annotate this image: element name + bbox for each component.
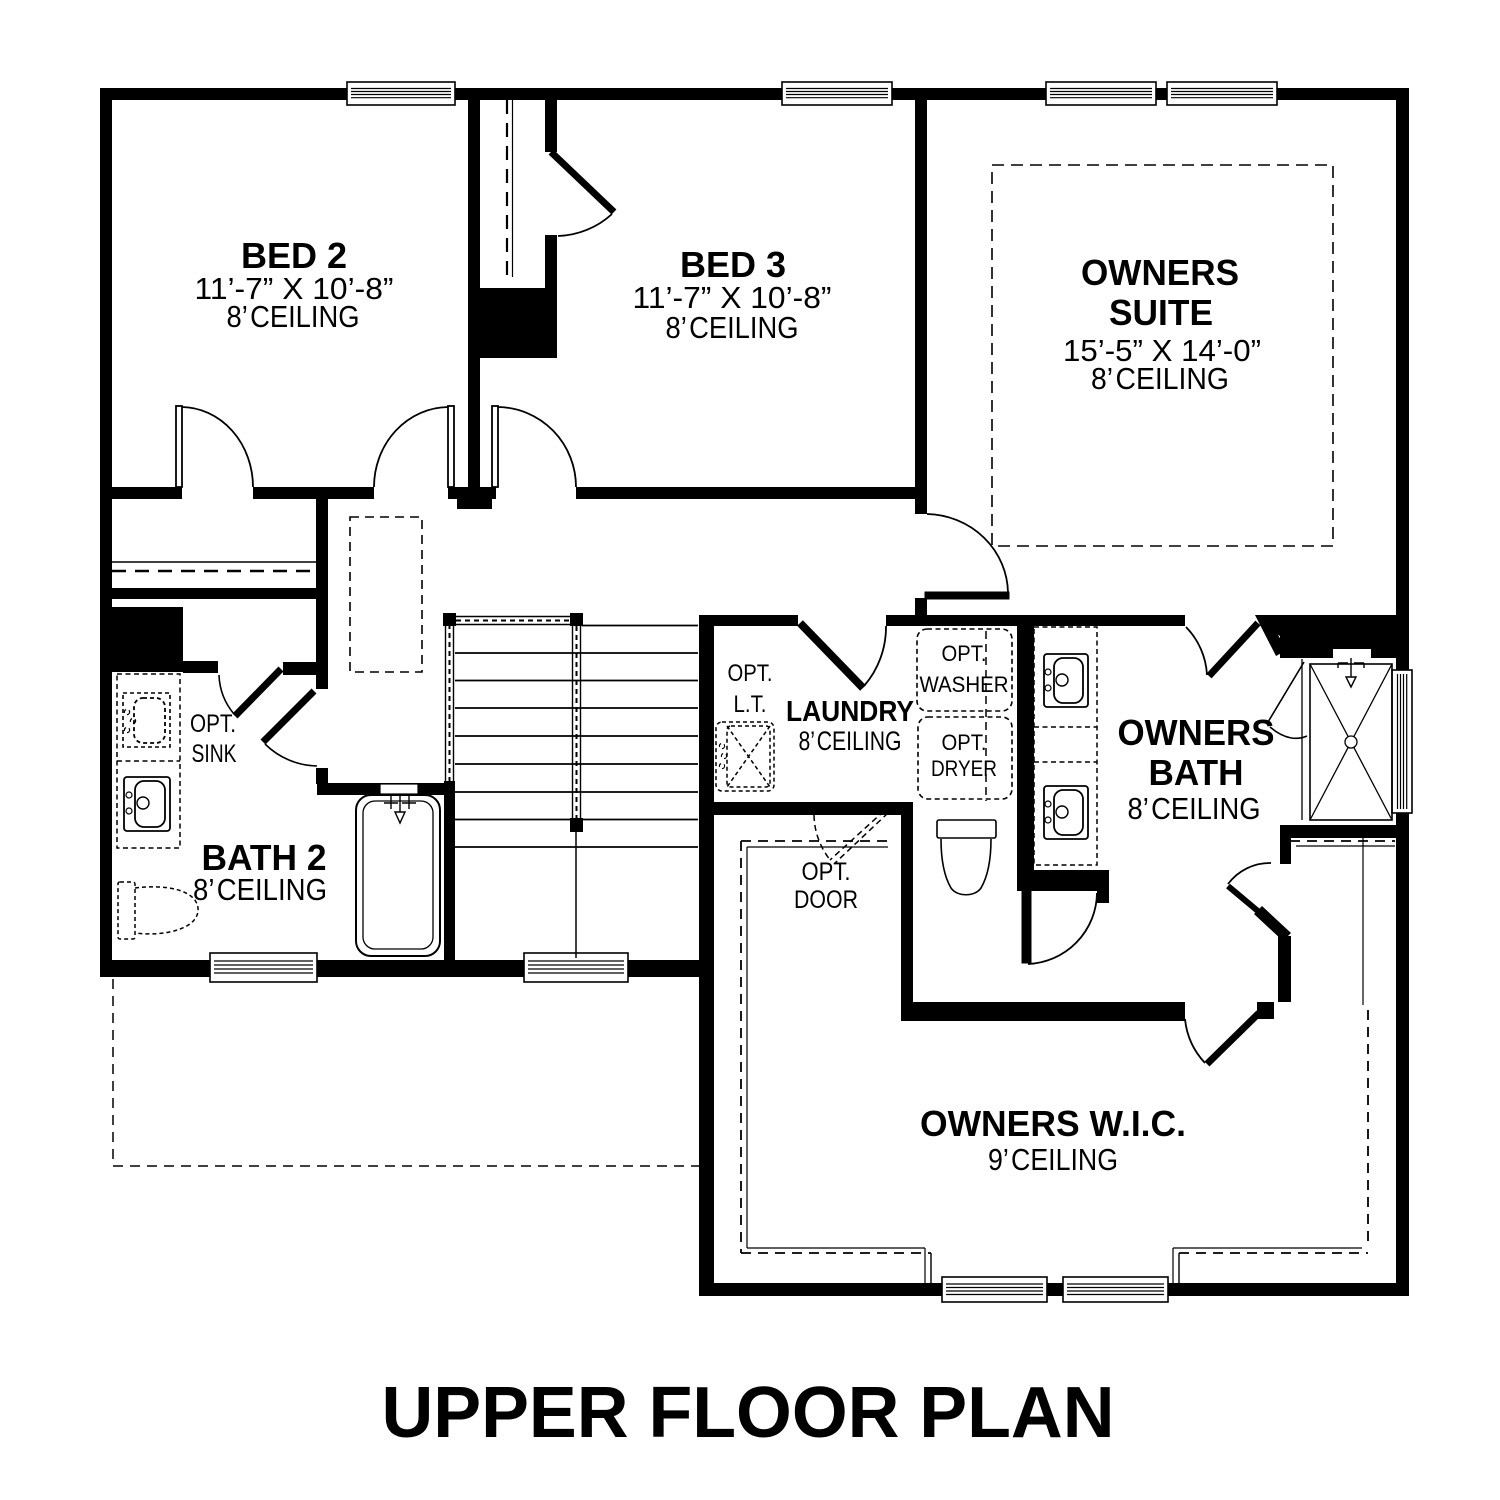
- svg-text:DOOR: DOOR: [794, 886, 858, 914]
- svg-text:OPT.: OPT.: [942, 641, 987, 666]
- svg-text:OPT.: OPT.: [942, 730, 987, 755]
- svg-text:SINK: SINK: [192, 740, 237, 768]
- svg-text:OWNERS: OWNERS: [1081, 252, 1239, 293]
- svg-text:BED 2: BED 2: [241, 235, 347, 276]
- svg-text:L.T.: L.T.: [734, 691, 767, 718]
- svg-text:OPT.: OPT.: [728, 660, 773, 687]
- svg-text:8’ CEILING: 8’ CEILING: [1128, 791, 1261, 826]
- svg-text:DRYER: DRYER: [931, 756, 997, 781]
- svg-text:8’ CEILING: 8’ CEILING: [193, 872, 327, 907]
- svg-text:UPPER FLOOR PLAN: UPPER FLOOR PLAN: [382, 1373, 1115, 1453]
- svg-text:8’ CEILING: 8’ CEILING: [1091, 361, 1229, 396]
- svg-text:SUITE: SUITE: [1109, 292, 1213, 333]
- svg-text:9’ CEILING: 9’ CEILING: [988, 1142, 1118, 1177]
- svg-text:OPT.: OPT.: [802, 858, 851, 886]
- svg-text:OWNERS: OWNERS: [1118, 712, 1275, 753]
- svg-text:BATH: BATH: [1149, 752, 1244, 793]
- svg-text:OPT.: OPT.: [190, 710, 236, 738]
- svg-text:8’ CEILING: 8’ CEILING: [666, 310, 799, 345]
- svg-text:BED 3: BED 3: [680, 244, 786, 285]
- svg-text:LAUNDRY: LAUNDRY: [786, 696, 914, 728]
- svg-text:OWNERS W.I.C.: OWNERS W.I.C.: [920, 1103, 1186, 1144]
- svg-text:8’ CEILING: 8’ CEILING: [227, 299, 360, 334]
- svg-text:8’ CEILING: 8’ CEILING: [799, 726, 902, 756]
- svg-text:WASHER: WASHER: [920, 672, 1009, 697]
